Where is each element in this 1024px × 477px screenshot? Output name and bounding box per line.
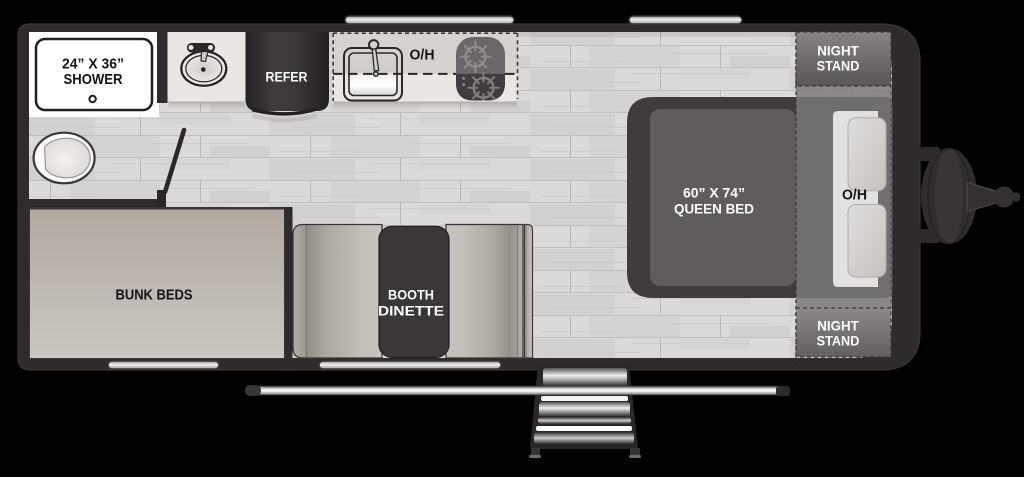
- svg-text:DINETTE: DINETTE: [378, 303, 444, 319]
- svg-text:QUEEN BED: QUEEN BED: [674, 201, 754, 217]
- svg-text:NIGHT: NIGHT: [817, 319, 859, 334]
- svg-text:O/H: O/H: [842, 188, 867, 204]
- svg-text:NIGHT: NIGHT: [817, 43, 859, 58]
- svg-text:SHOWER: SHOWER: [64, 71, 123, 88]
- svg-text:STAND: STAND: [817, 334, 860, 349]
- svg-text:BUNK BEDS: BUNK BEDS: [116, 288, 193, 304]
- svg-text:BOOTH: BOOTH: [388, 287, 434, 303]
- svg-text:STAND: STAND: [817, 58, 860, 73]
- svg-text:REFER: REFER: [266, 69, 308, 84]
- svg-text:24” X 36”: 24” X 36”: [62, 56, 124, 73]
- svg-text:60” X 74”: 60” X 74”: [683, 185, 745, 201]
- svg-text:O/H: O/H: [410, 47, 435, 63]
